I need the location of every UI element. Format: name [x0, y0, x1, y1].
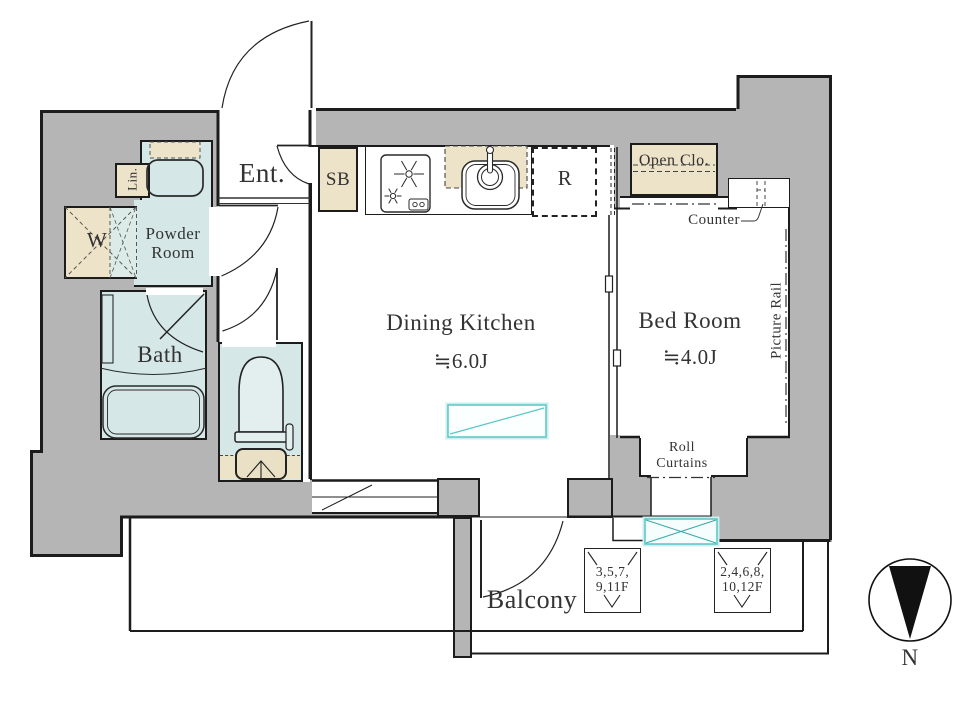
- dk-window-band: [312, 479, 437, 514]
- label-roll-curtains: Roll Curtains: [647, 440, 717, 471]
- opening-bath-door: [146, 288, 203, 295]
- room-label-bed-room: Bed Room: [605, 308, 775, 334]
- room-label-refrigerator: R: [533, 167, 597, 191]
- room-label-dining-kitchen: Dining Kitchen: [336, 310, 586, 336]
- room-label-bath: Bath: [115, 342, 205, 368]
- powder-room-sink-area: [140, 140, 213, 200]
- toilet-room-floor: [218, 342, 303, 482]
- wall-mass-top: [316, 108, 737, 145]
- label-hatch-even-floors: 2,4,6,8, 10,12F: [716, 564, 769, 594]
- room-size-bed-room: ≒4.0J: [605, 346, 775, 370]
- compass-icon: [869, 559, 951, 641]
- room-label-open-closet: Open Clo.: [632, 152, 716, 170]
- balcony-partition-head: [437, 478, 480, 517]
- bedroom-balcony-opening: [651, 477, 711, 517]
- room-label-linen: Lin.: [126, 144, 141, 214]
- room-size-dining-kitchen: ≒6.0J: [336, 350, 586, 374]
- label-balcony: Balcony: [462, 585, 602, 614]
- room-label-powder-room: Powder Room: [128, 224, 218, 262]
- wall-mass-under-bath: [100, 440, 218, 517]
- room-label-counter: Counter: [642, 212, 740, 229]
- wall-block-dk-bedroom: [567, 478, 613, 518]
- kitchen-counter: [365, 145, 532, 215]
- room-label-entrance: Ent.: [214, 158, 310, 188]
- label-compass-north: N: [897, 645, 923, 671]
- room-label-shoe-box: SB: [318, 169, 358, 190]
- front-door: [222, 21, 312, 108]
- opening-toilet-door: [222, 339, 276, 347]
- highlight-balcony-item: [645, 519, 717, 544]
- wall-mass-under-hall: [218, 482, 310, 517]
- label-hatch-odd-floors: 3,5,7, 9,11F: [586, 564, 639, 594]
- room-label-washer: W: [86, 229, 108, 253]
- toilet-room-step: [220, 455, 300, 479]
- entrance-hall-floor: [218, 110, 310, 342]
- floor-plan: Ent. SB R Open Clo. Counter Picture Rail…: [0, 0, 980, 706]
- counter-nook: [728, 178, 790, 208]
